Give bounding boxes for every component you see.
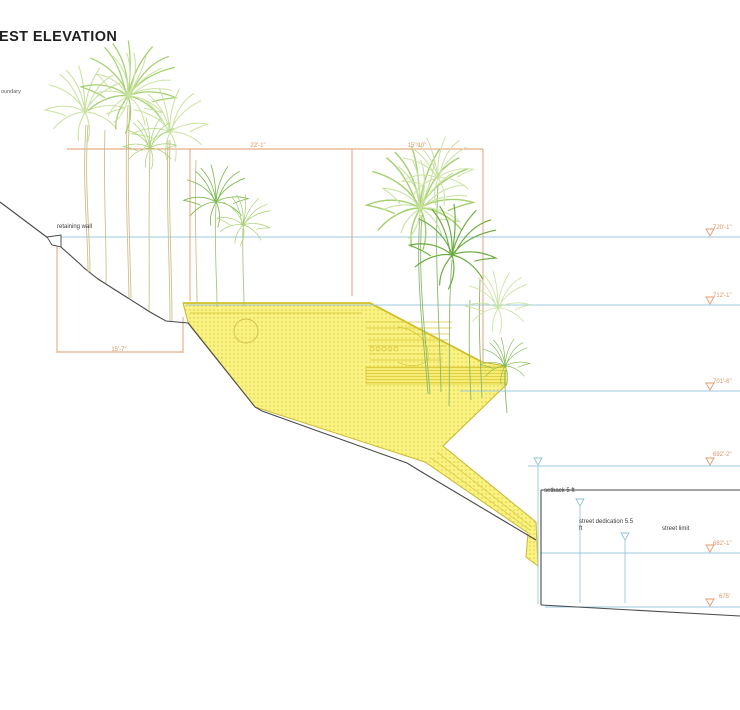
building-outline xyxy=(183,303,538,566)
drawing-title: EST ELEVATION xyxy=(0,29,117,45)
building-section xyxy=(183,303,538,566)
street-limit-label: street limit xyxy=(662,526,689,533)
elevation-label-692: 692'-2" xyxy=(713,452,732,459)
elevation-drawing xyxy=(0,0,740,710)
dimension-label-22-1: 22'-1" xyxy=(238,143,278,150)
dimension-label-15-7: 15'-7" xyxy=(99,347,139,354)
retaining-wall-symbol xyxy=(47,235,61,247)
elevation-label-682: 682'-1" xyxy=(713,541,732,548)
elevation-triangles xyxy=(706,229,714,606)
elevation-label-720: 720'-1" xyxy=(713,225,732,232)
elevation-triangle-692 xyxy=(706,458,714,465)
elevation-label-712: 712'-1" xyxy=(713,293,732,300)
elevation-triangle-675 xyxy=(706,599,714,606)
setback-label: setback 5 ft xyxy=(544,488,575,495)
boundary-label: oundary xyxy=(1,89,21,96)
dimension-label-15-10: 15'-10" xyxy=(394,143,440,150)
datum-triangle-dedication xyxy=(621,533,629,540)
palm-trunks-left xyxy=(85,105,197,321)
datum-triangle-692-left xyxy=(534,458,542,465)
datum-triangle-setback xyxy=(576,499,584,506)
elevation-label-675: 675' xyxy=(719,594,730,601)
retaining-wall-label: retaining wall xyxy=(57,224,92,231)
building-deck-band xyxy=(366,367,506,384)
elevation-drawing-page: EST ELEVATION oundary retaining wall 22'… xyxy=(0,0,740,710)
street-dedication-label: street dedication 5.5 ft xyxy=(579,519,635,533)
elevation-label-701: 701'-6" xyxy=(713,379,732,386)
